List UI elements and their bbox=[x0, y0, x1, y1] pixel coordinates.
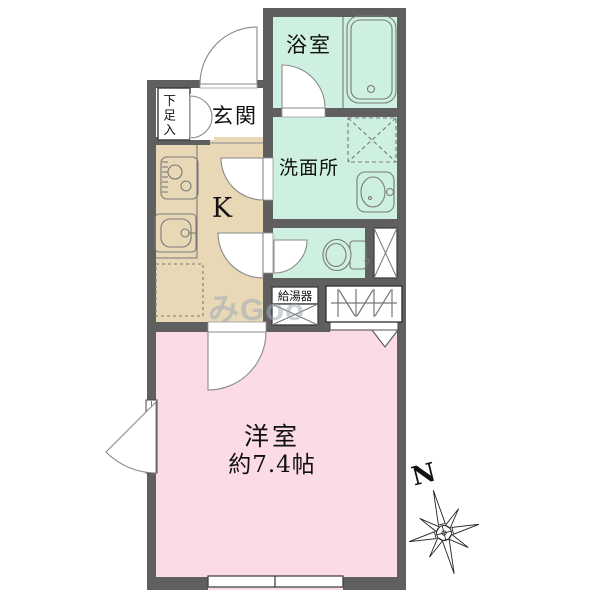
compass-rose bbox=[398, 482, 489, 583]
entrance-door-swing bbox=[200, 27, 257, 84]
entrance-label: 玄関 bbox=[206, 105, 264, 127]
bathroom-door-opening bbox=[282, 108, 325, 117]
corridor bbox=[326, 286, 402, 322]
corridor-window-strip bbox=[330, 322, 398, 330]
left-window-swing bbox=[106, 402, 156, 473]
compass-north-point bbox=[430, 489, 445, 525]
bathroom-label: 浴室 bbox=[281, 34, 337, 56]
kitchen-label: K bbox=[208, 195, 236, 223]
water-heater-label: 給湯器 bbox=[272, 290, 318, 302]
washroom-label: 洗面所 bbox=[275, 159, 343, 179]
washroom-door-opening bbox=[263, 158, 273, 200]
toilet-door-opening bbox=[263, 233, 273, 273]
floorplan-canvas: みGoo 浴室 洗面所 玄関 下足入 K 給湯器 洋室 約7.4帖 N bbox=[0, 0, 600, 600]
western-room-area-label: 約7.4帖 bbox=[197, 453, 347, 477]
western-room-label: 洋室 bbox=[197, 424, 347, 450]
shoe-cabinet-label: 下足入 bbox=[162, 92, 175, 140]
